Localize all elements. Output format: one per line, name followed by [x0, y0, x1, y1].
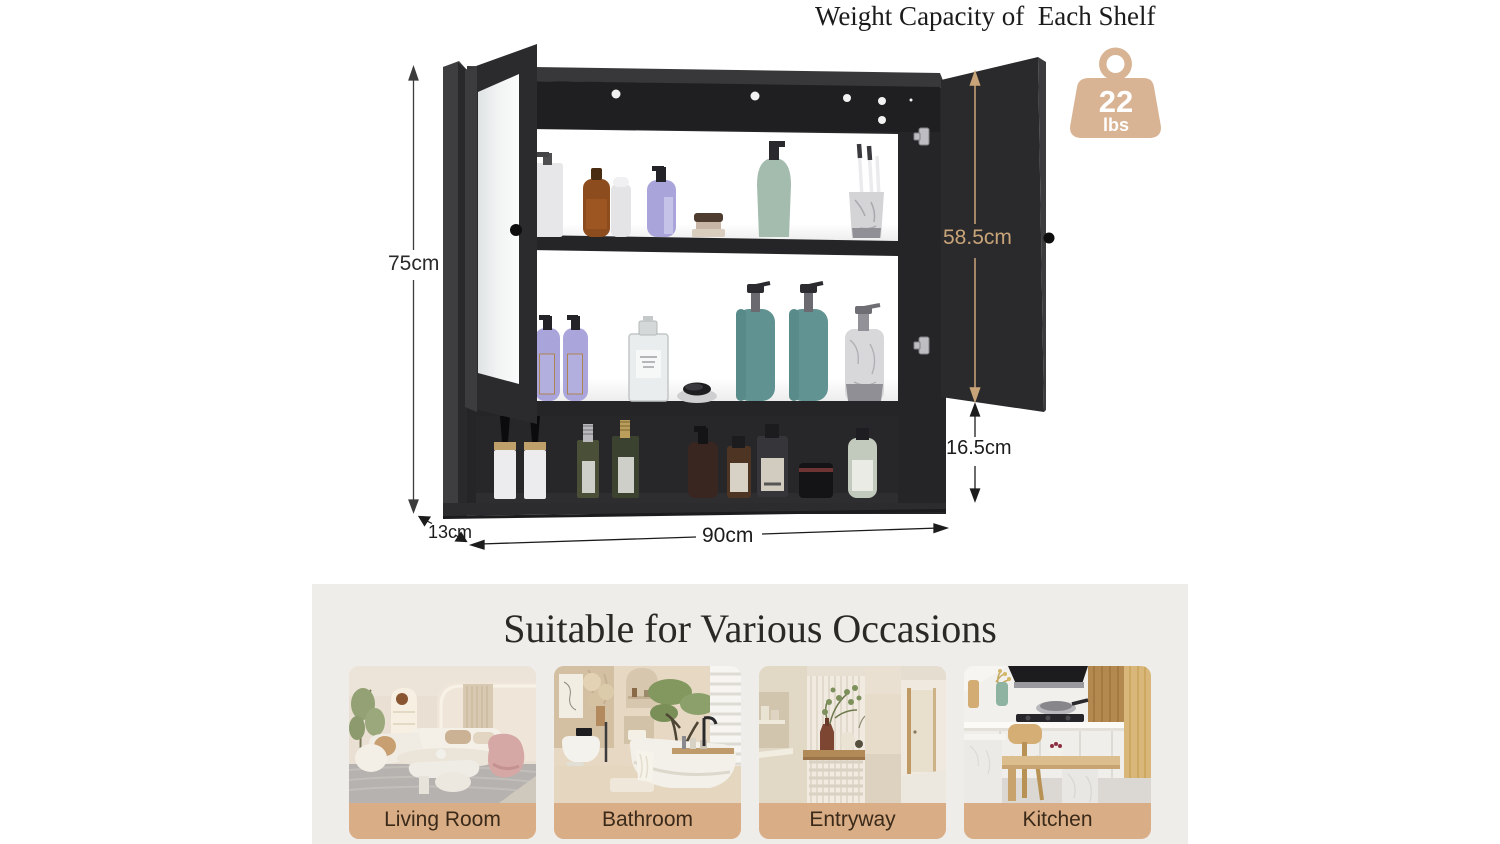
svg-text:22: 22 [1099, 84, 1133, 119]
svg-text:lbs: lbs [1103, 115, 1129, 135]
